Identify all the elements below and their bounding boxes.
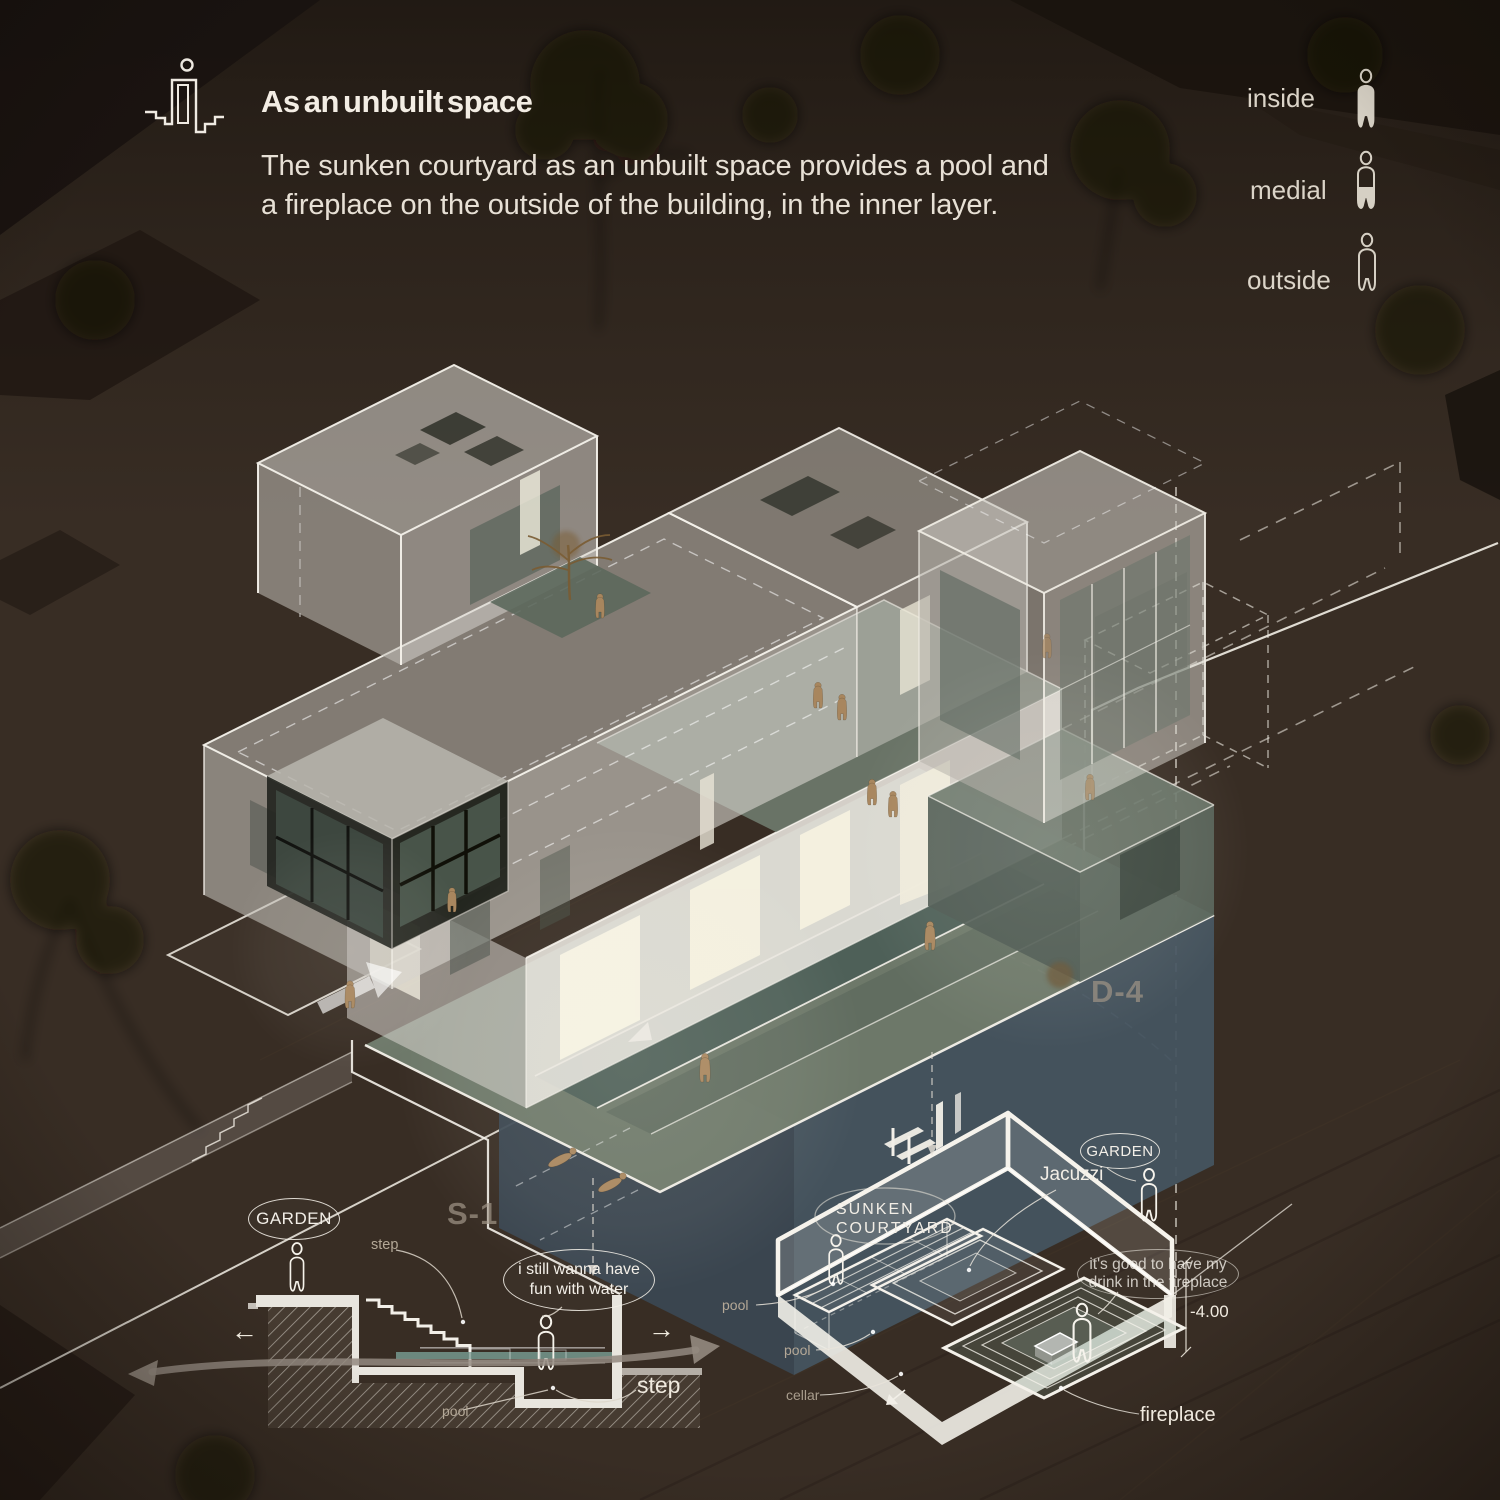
sunken-courtyard-line1: SUNKEN	[836, 1200, 954, 1219]
speech-bubble-fireplace-line1: it's good to have my	[1089, 1256, 1226, 1275]
legend-label-inside: inside	[1247, 83, 1315, 114]
vignette-overlay	[0, 0, 1500, 1500]
sunken-courtyard-line2: COURTYARD	[836, 1219, 954, 1238]
jacuzzi-label: Jacuzzi	[1040, 1164, 1103, 1186]
step-label-small: step	[371, 1237, 398, 1253]
level-label: -4.00	[1190, 1302, 1229, 1322]
section-marker-s1: S-1	[447, 1196, 498, 1232]
pool-label-upper: pool	[722, 1297, 748, 1313]
speech-bubble-fireplace: it's good to have my drink in the firepl…	[1077, 1249, 1239, 1299]
speech-bubble-water-line2: fun with water	[530, 1280, 629, 1300]
presentation-board: As an unbuilt space The sunken courtyard…	[0, 0, 1500, 1500]
detail-marker-d4: D-4	[1091, 974, 1144, 1010]
step-label-large: step	[637, 1372, 680, 1399]
garden-bubble-section-text: GARDEN	[256, 1209, 332, 1229]
garden-bubble-courtyard-text: GARDEN	[1086, 1143, 1153, 1160]
arrow-right-icon: →	[648, 1314, 675, 1345]
sunken-courtyard-label: SUNKEN COURTYARD	[836, 1200, 954, 1238]
cellar-label: cellar	[786, 1387, 819, 1403]
garden-bubble-section: GARDEN	[248, 1198, 340, 1240]
speech-bubble-water-line1: i still wanna have	[518, 1260, 640, 1280]
page-description: The sunken courtyard as an unbuilt space…	[261, 147, 1061, 224]
legend-label-medial: medial	[1250, 175, 1327, 206]
page-title: As an unbuilt space	[261, 84, 532, 120]
scene-graphics	[0, 0, 1500, 1500]
legend-label-outside: outside	[1247, 265, 1331, 296]
speech-bubble-water: i still wanna have fun with water	[503, 1249, 655, 1311]
pool-label-lower: pool	[784, 1342, 810, 1358]
arrow-left-icon: ←	[231, 1316, 258, 1347]
speech-bubble-fireplace-line2: drink in the fireplace	[1089, 1274, 1228, 1293]
pool-label-section: pool	[442, 1403, 468, 1419]
fireplace-label: fireplace	[1140, 1404, 1216, 1427]
